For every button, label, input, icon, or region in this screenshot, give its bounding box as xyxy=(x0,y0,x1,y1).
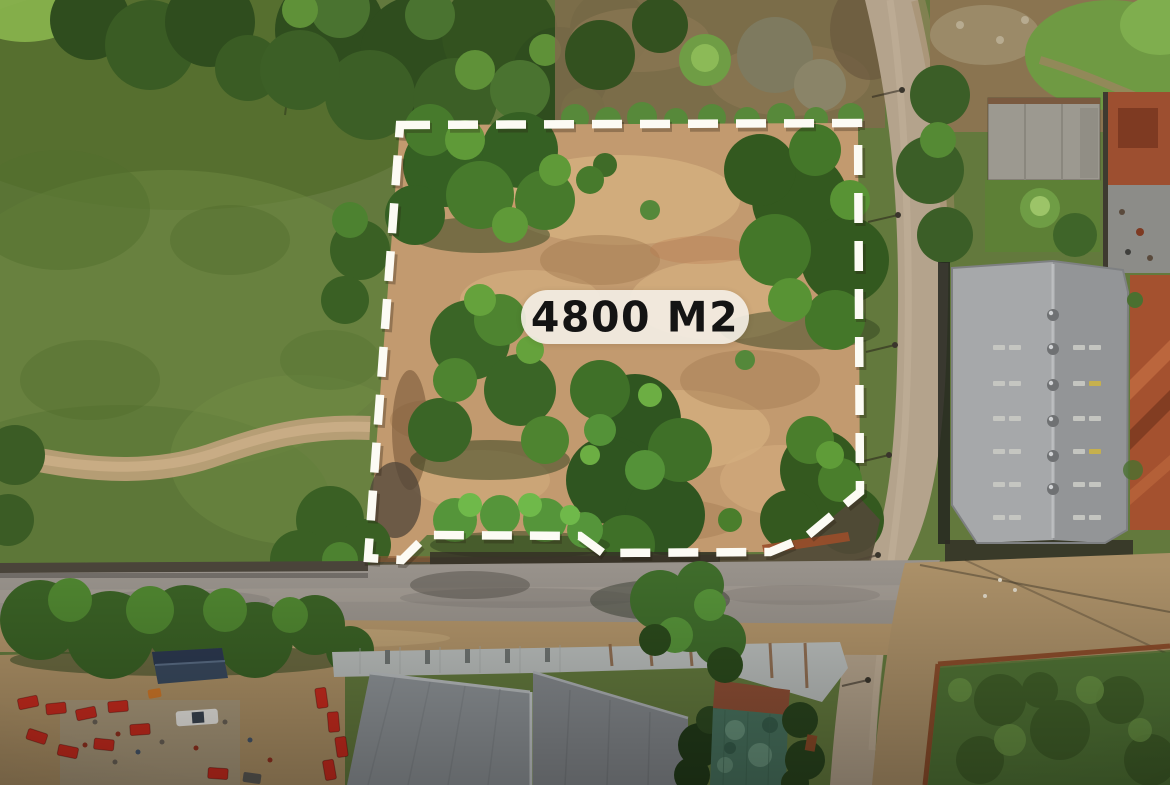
area-label-pill: 4800 M2 xyxy=(521,290,749,344)
warehouse-sheds xyxy=(332,642,848,785)
top-right-compound xyxy=(896,0,1170,273)
aerial-scene xyxy=(0,0,1170,785)
bottom-right-lot xyxy=(872,553,1170,785)
area-label-text: 4800 M2 xyxy=(531,293,739,342)
aerial-photo: 4800 M2 xyxy=(0,0,1170,785)
top-dry-brush xyxy=(555,0,910,133)
concrete-building xyxy=(988,98,1100,180)
terracotta-roofs xyxy=(1123,275,1170,530)
warehouse xyxy=(938,261,1133,562)
rust-buildings xyxy=(1103,92,1170,273)
hut-roof xyxy=(152,648,228,684)
teal-court xyxy=(710,708,788,785)
